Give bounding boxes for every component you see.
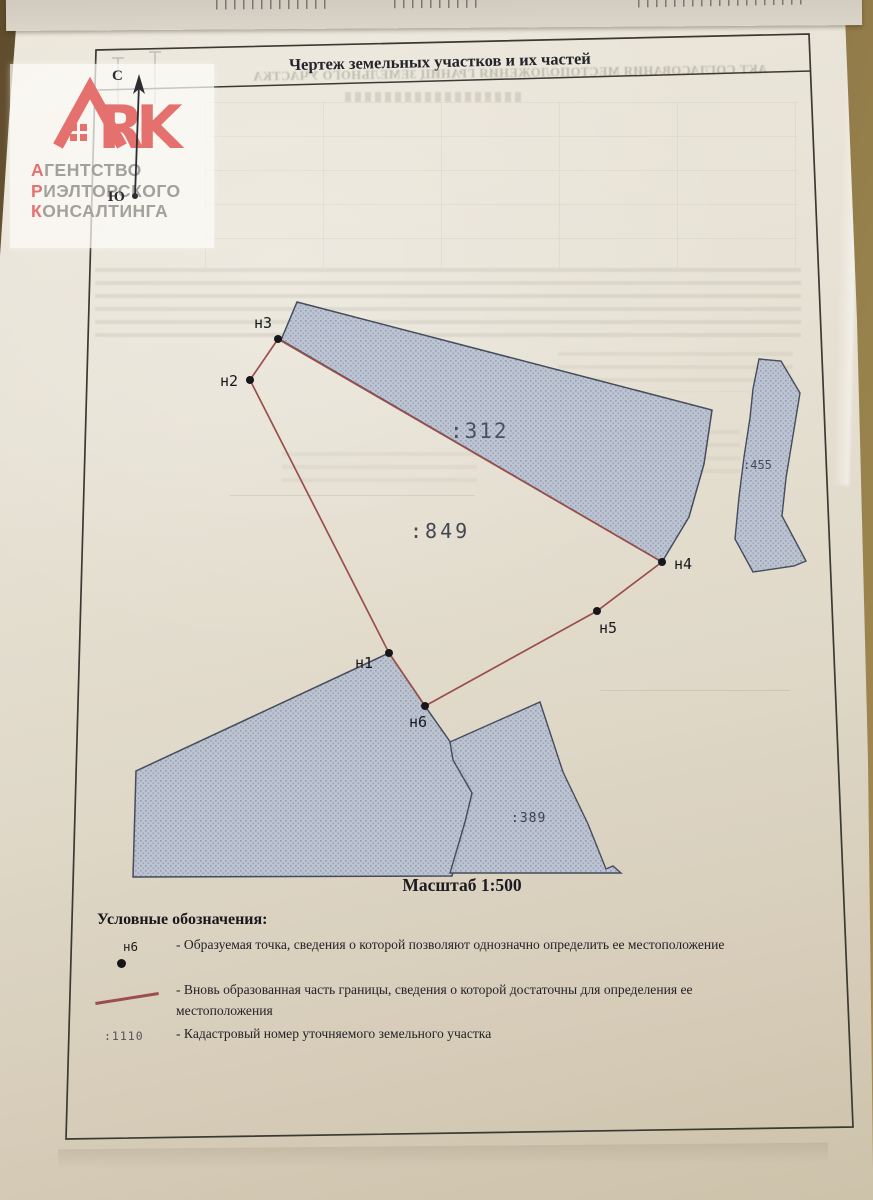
compass-north-label: С xyxy=(112,68,123,84)
compass-south-label: Ю xyxy=(108,189,125,205)
north-arrow-shaft xyxy=(135,84,139,196)
legend-heading: Условные обозначения: xyxy=(97,911,268,929)
legend-point-symbol-label: н6 xyxy=(123,939,138,954)
legend-point-symbol-dot xyxy=(117,959,126,968)
legend-item-boundary-text: - Вновь образованная часть границы, свед… xyxy=(176,979,721,1021)
legend-item-cadastral-text: - Кадастровый номер уточняемого земельно… xyxy=(176,1023,736,1044)
legend-cadastral-symbol-label: :1110 xyxy=(104,1029,144,1043)
scanned-document-photo: АКТ СОГЛАСОВАНИЯ МЕСТОПОЛОЖЕНИЯ ГРАНИЦ З… xyxy=(0,0,873,1200)
north-arrow-base-dot xyxy=(132,193,138,199)
legend-item-point-text: - Образуемая точка, сведения о которой п… xyxy=(176,934,826,955)
